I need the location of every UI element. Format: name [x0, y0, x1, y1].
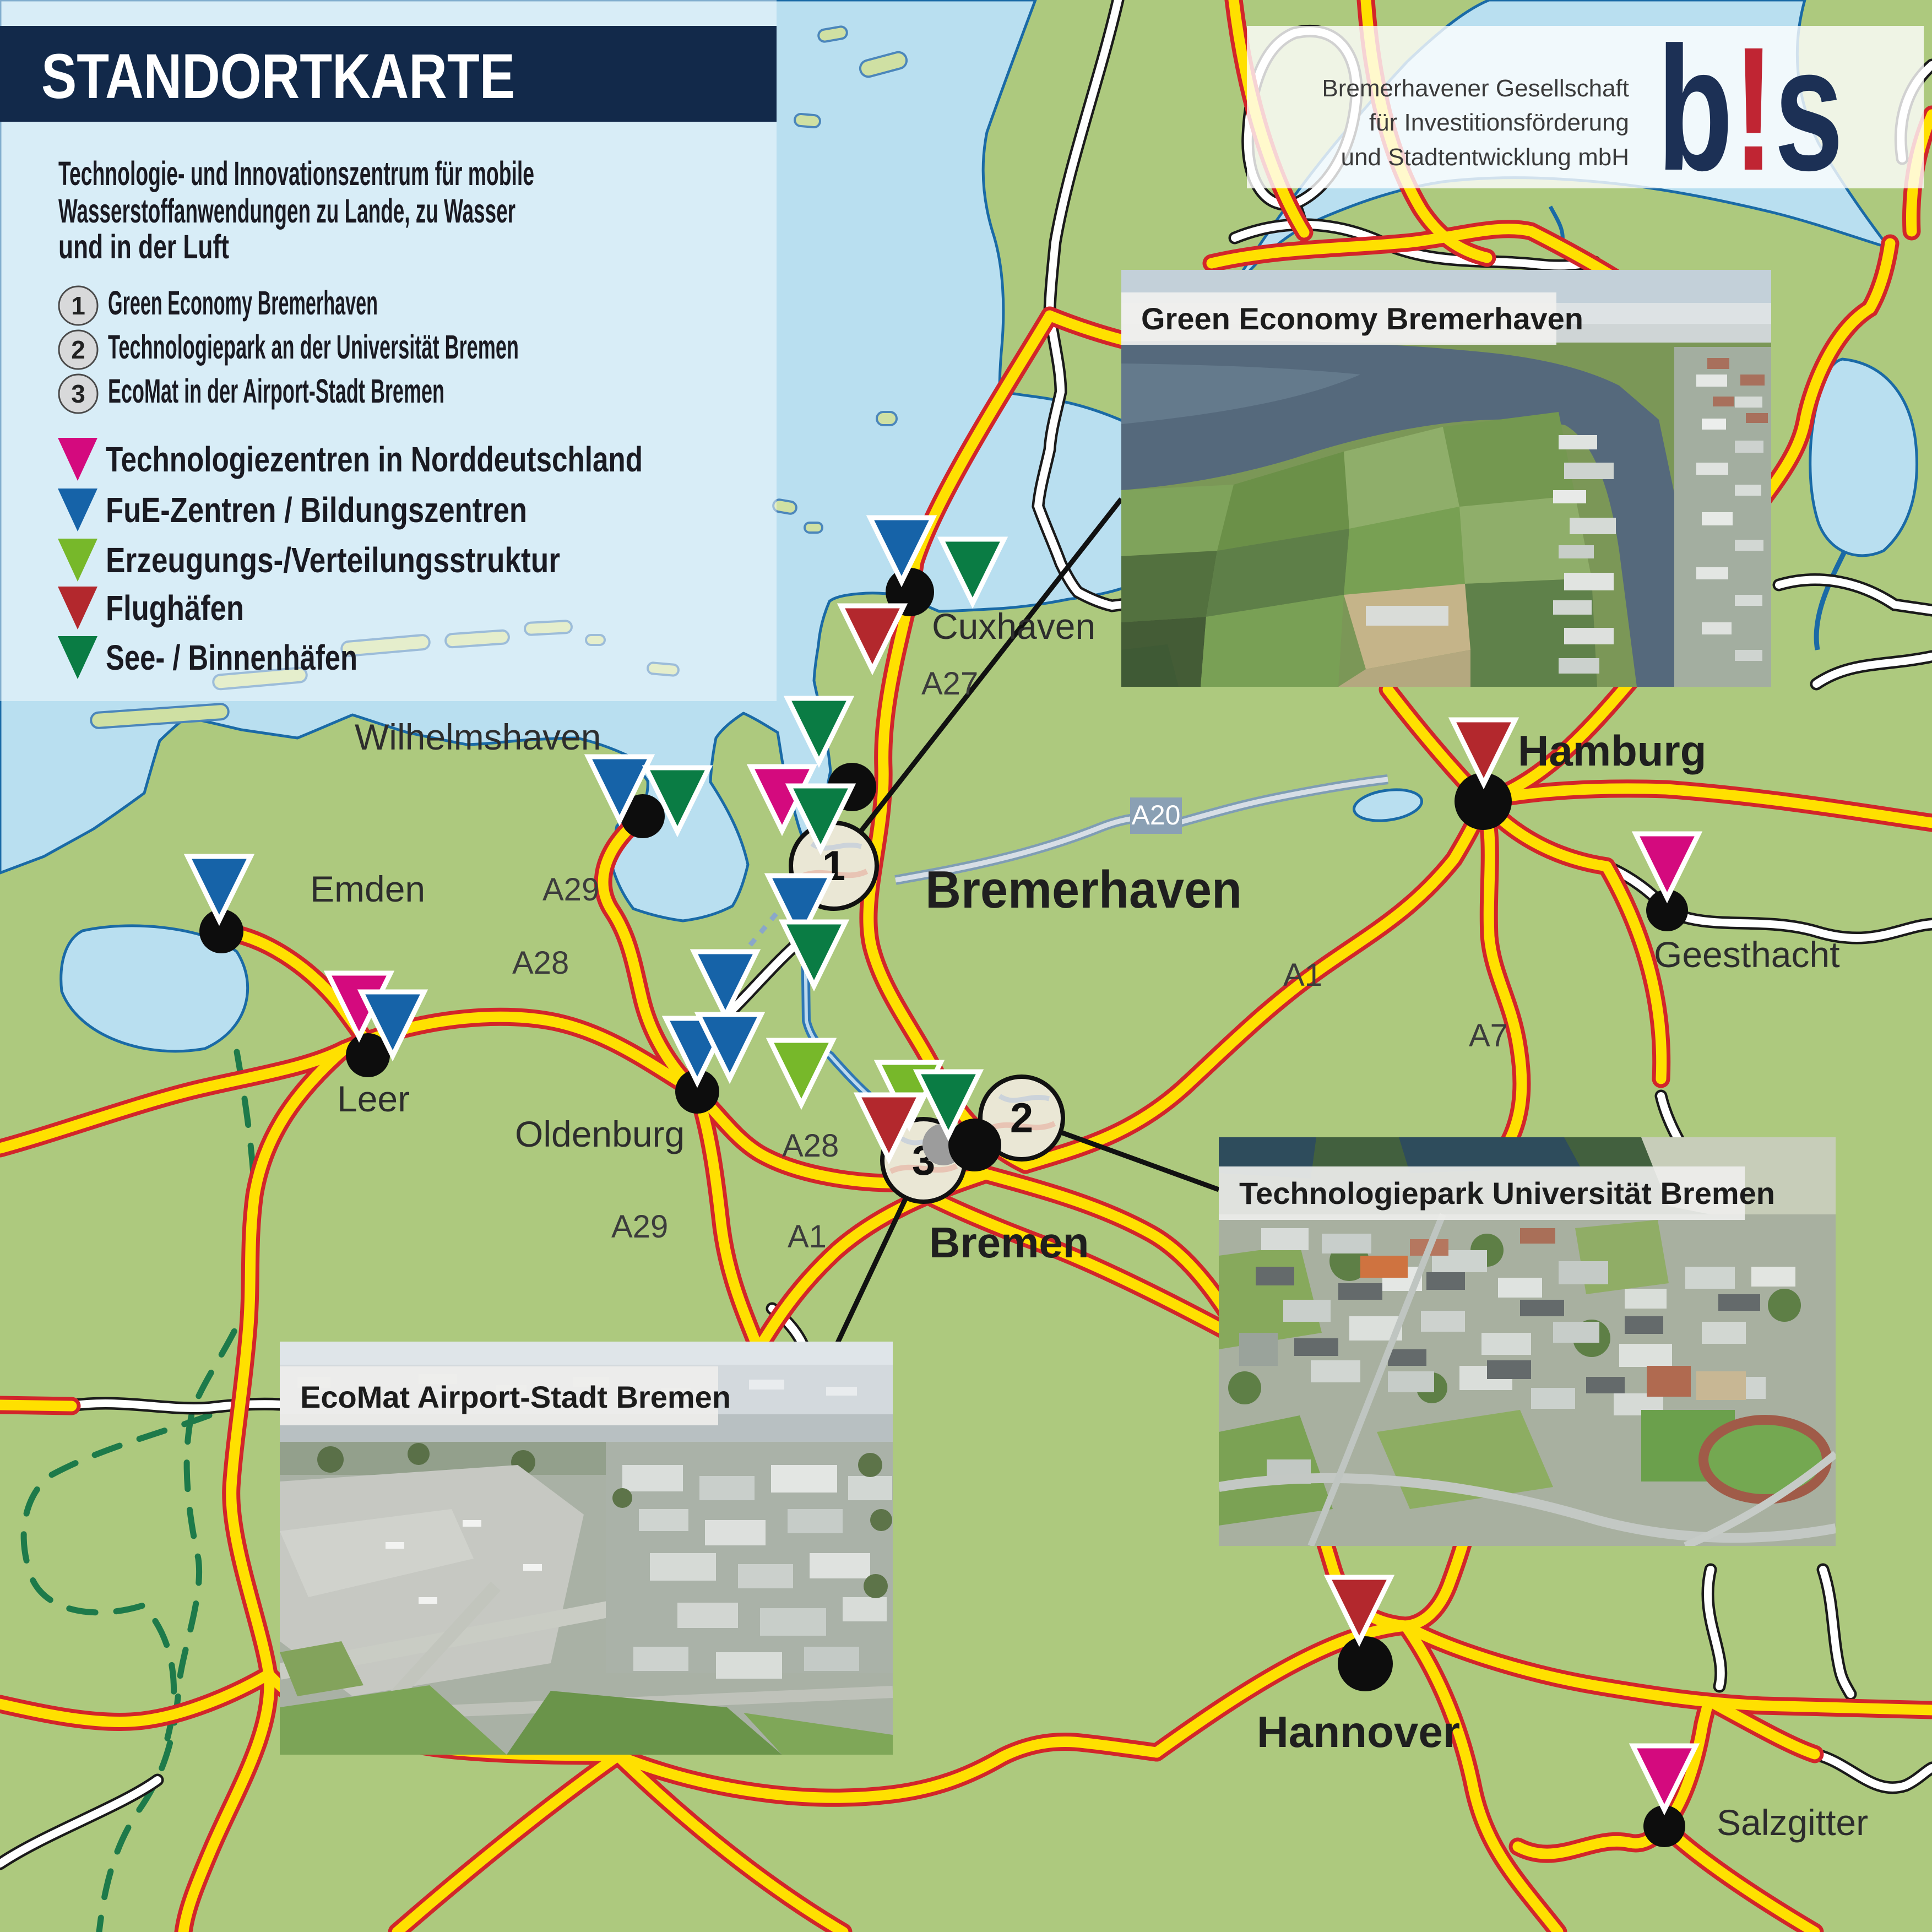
svg-text:Emden: Emden [310, 869, 425, 909]
svg-text:A1: A1 [788, 1219, 827, 1255]
svg-text:Technologiezentren in Norddeut: Technologiezentren in Norddeutschland [106, 439, 643, 479]
svg-text:Wasserstoffanwendungen zu Land: Wasserstoffanwendungen zu Lande, zu Wass… [58, 192, 515, 230]
svg-text:2: 2 [1010, 1095, 1033, 1142]
svg-text:A28: A28 [512, 945, 569, 981]
svg-text:Bremen: Bremen [929, 1218, 1089, 1267]
svg-text:A29: A29 [542, 872, 599, 908]
svg-text:A20: A20 [1132, 800, 1181, 831]
svg-text:Geesthacht: Geesthacht [1654, 934, 1840, 975]
svg-text:STANDORTKARTE: STANDORTKARTE [41, 41, 515, 112]
svg-text:Salzgitter: Salzgitter [1717, 1802, 1868, 1843]
svg-text:Bremerhaven: Bremerhaven [925, 860, 1242, 919]
svg-text:A27: A27 [921, 666, 978, 702]
svg-text:Oldenburg: Oldenburg [515, 1114, 685, 1154]
svg-text:Wilhelmshaven: Wilhelmshaven [355, 717, 601, 757]
svg-text:b!s: b!s [1657, 10, 1843, 207]
svg-text:See- / Binnenhäfen: See- / Binnenhäfen [106, 638, 357, 677]
svg-text:1: 1 [71, 291, 85, 320]
svg-text:EcoMat in der Airport-Stadt Br: EcoMat in der Airport-Stadt Bremen [108, 372, 444, 410]
svg-text:Bremerhavener Gesellschaft: Bremerhavener Gesellschaft [1322, 75, 1629, 102]
svg-text:EcoMat Airport-Stadt Bremen: EcoMat Airport-Stadt Bremen [300, 1380, 731, 1414]
svg-text:Technologiepark an der Univers: Technologiepark an der Universität Breme… [108, 328, 519, 366]
svg-text:FuE-Zentren / Bildungszentren: FuE-Zentren / Bildungszentren [106, 490, 527, 530]
svg-text:A1: A1 [1283, 957, 1322, 993]
svg-text:Erzeugungs-/Verteilungsstruktu: Erzeugungs-/Verteilungsstruktur [106, 540, 560, 580]
svg-text:Green Economy Bremerhaven: Green Economy Bremerhaven [108, 284, 378, 322]
svg-text:3: 3 [71, 379, 85, 408]
svg-text:und in der Luft: und in der Luft [58, 228, 229, 265]
svg-text:A7: A7 [1469, 1018, 1508, 1054]
svg-text:Leer: Leer [337, 1078, 410, 1119]
svg-text:für Investitionsförderung: für Investitionsförderung [1369, 109, 1629, 136]
svg-text:und Stadtentwicklung mbH: und Stadtentwicklung mbH [1341, 144, 1629, 171]
svg-text:2: 2 [71, 335, 85, 364]
svg-text:A29: A29 [611, 1209, 668, 1245]
svg-text:Green Economy Bremerhaven: Green Economy Bremerhaven [1141, 301, 1583, 336]
svg-text:Hamburg: Hamburg [1518, 726, 1706, 775]
svg-text:Technologie- und Innovationsze: Technologie- und Innovationszentrum für … [58, 155, 534, 192]
svg-text:Hannover: Hannover [1257, 1707, 1460, 1756]
svg-text:Flughäfen: Flughäfen [106, 588, 244, 628]
svg-text:Technologiepark Universität Br: Technologiepark Universität Bremen [1239, 1176, 1775, 1211]
svg-text:A28: A28 [782, 1128, 839, 1164]
svg-text:Cuxhaven: Cuxhaven [932, 606, 1095, 647]
